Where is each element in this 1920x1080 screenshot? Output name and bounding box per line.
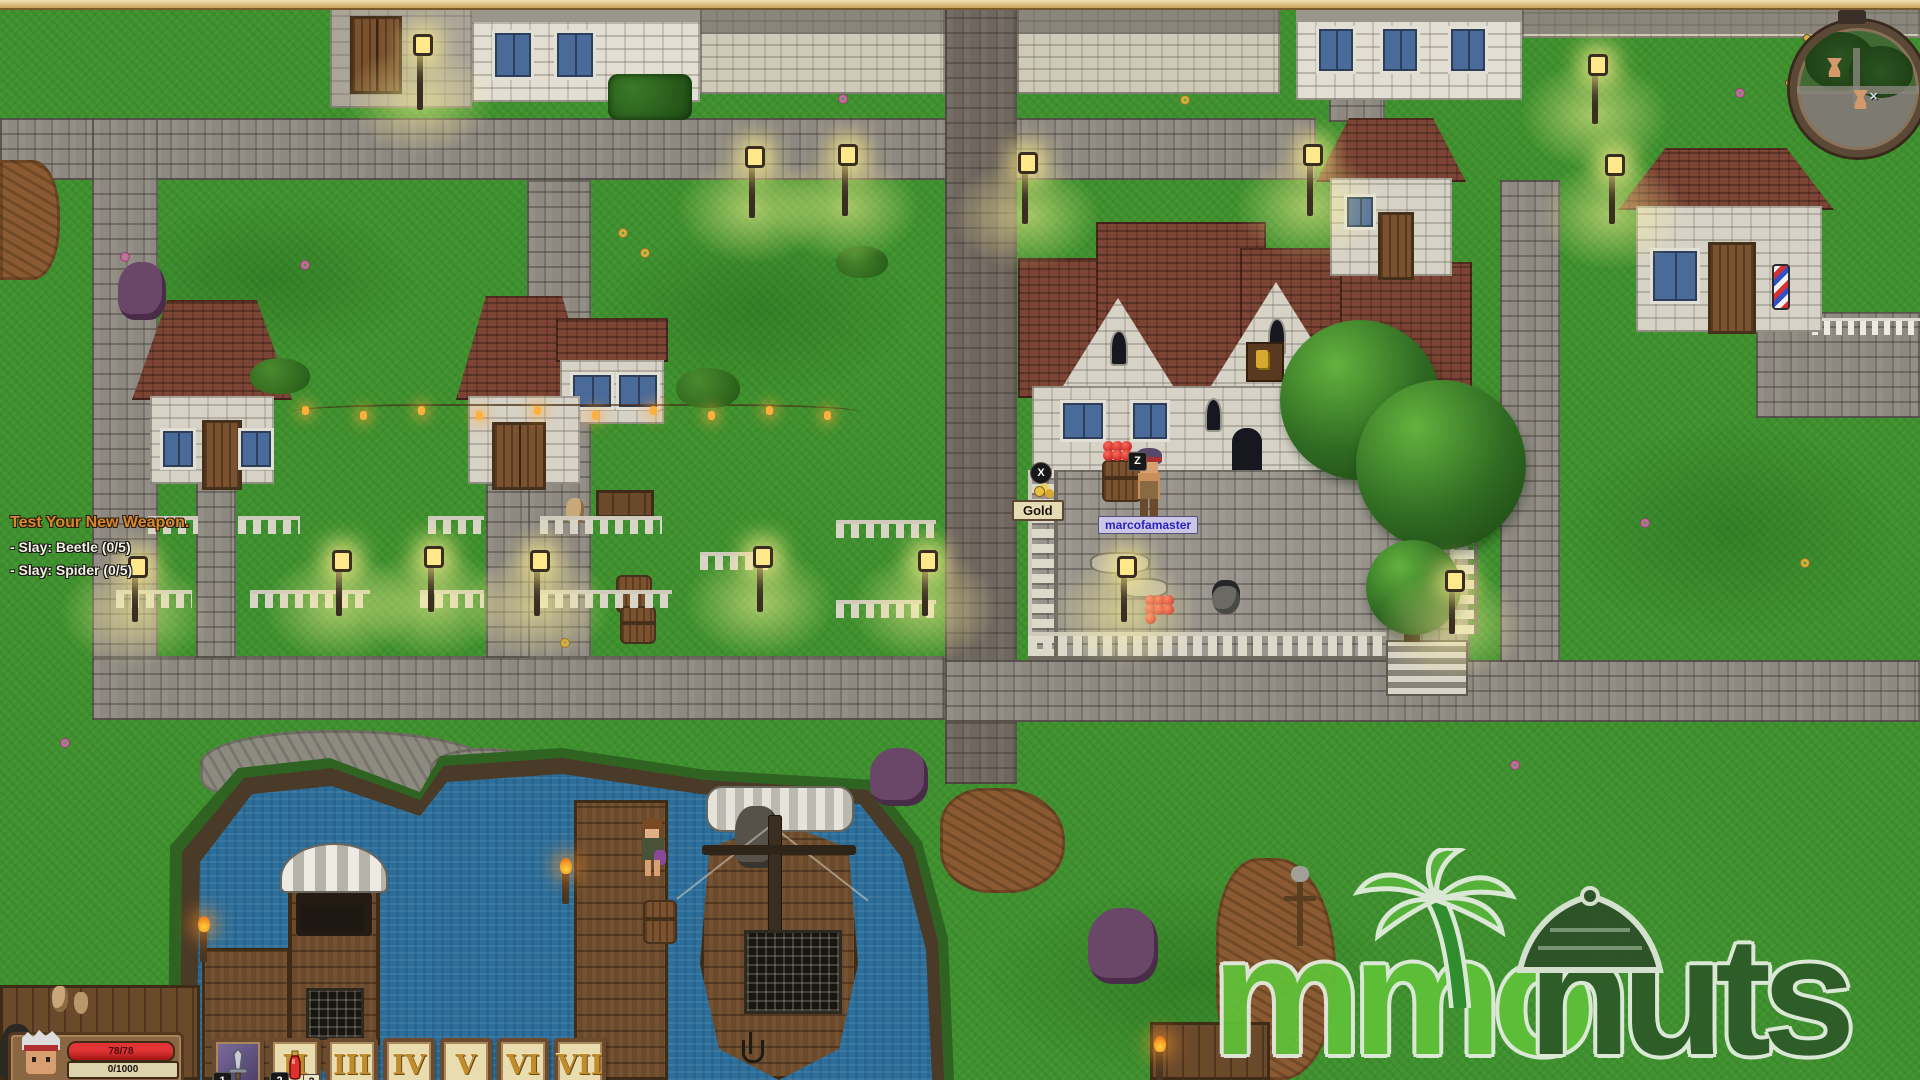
hotbar-numeral: III <box>333 1050 371 1080</box>
barber-pole-icon <box>1772 264 1790 310</box>
window <box>1316 26 1356 74</box>
xp-bar: 0/1000 <box>67 1061 179 1079</box>
hotbar-slot-4[interactable]: IV <box>383 1038 435 1080</box>
npc-dock[interactable] <box>640 818 666 880</box>
slit-window <box>1110 330 1128 366</box>
top-building-roofline <box>472 8 700 22</box>
path-house-b <box>486 484 530 658</box>
stone-fence <box>420 590 484 608</box>
bush <box>250 358 310 394</box>
top-building-door[interactable] <box>350 16 402 94</box>
quest-objective: - Slay: Spider (0/5) <box>10 562 250 578</box>
town-wall-right <box>1017 8 1280 94</box>
player-leg <box>1150 499 1158 517</box>
player-marker-icon: ✕ <box>1869 90 1878 103</box>
terrace-stairs <box>1386 640 1468 696</box>
slit-window <box>1205 398 1222 432</box>
apple-pile[interactable] <box>1146 596 1176 623</box>
hotbar-slot-7[interactable]: VII <box>554 1038 606 1080</box>
portrait-face <box>26 1048 56 1074</box>
hotbar-numeral: VII <box>557 1050 603 1080</box>
dirt-patch <box>940 788 1065 893</box>
window <box>1650 248 1700 304</box>
hp-bar: 78/78 <box>67 1041 175 1062</box>
player-portrait[interactable] <box>20 1030 62 1078</box>
tavern-sign-mug-icon <box>1256 350 1268 368</box>
hotbar-slot-2[interactable]: II 2 2 <box>269 1038 321 1080</box>
stone-fence <box>250 590 370 608</box>
stone-fence <box>836 520 936 538</box>
purple-stump <box>118 262 166 320</box>
window <box>160 428 196 470</box>
interact-key-badge[interactable]: Z <box>1128 452 1147 471</box>
stone-fence <box>428 516 484 534</box>
minimap-knob <box>1838 10 1866 24</box>
amphora <box>52 986 68 1012</box>
house-b-door[interactable] <box>492 422 546 490</box>
road-left-vertical <box>92 118 158 720</box>
window <box>1448 26 1488 74</box>
house-b-wing-roof <box>556 318 668 362</box>
ship-large-grate <box>744 930 842 1014</box>
house-topright-door[interactable] <box>1378 212 1414 280</box>
tree-small <box>1366 540 1461 635</box>
hotbar-slot-1[interactable]: 1 <box>212 1038 264 1080</box>
coin-icon <box>1034 486 1045 497</box>
tree <box>1356 380 1526 550</box>
anchor-icon <box>742 1040 764 1063</box>
gold-label[interactable]: Gold <box>1012 500 1064 521</box>
mmohuts-watermark: mmo huts <box>1200 850 1920 1080</box>
purple-stump <box>870 748 928 806</box>
stone-fence <box>540 590 672 608</box>
player-name-tag: marcofamaster <box>1098 516 1198 534</box>
hotbar-slot-6[interactable]: VI <box>497 1038 549 1080</box>
hotbar-key-2: 2 <box>270 1072 289 1080</box>
weapon-table <box>596 490 654 518</box>
dock-barrel[interactable] <box>643 900 677 944</box>
quest-tracker: Test Your New Weapon. - Slay: Beetle (0/… <box>10 514 250 578</box>
portrait-eye <box>32 1057 36 1062</box>
hut-icon <box>1510 886 1670 986</box>
string-lights-wire <box>292 404 860 420</box>
purple-stump <box>1088 908 1158 984</box>
npc-face <box>645 829 659 838</box>
npc-leg <box>645 860 651 876</box>
hotbar-slot-3[interactable]: III <box>326 1038 378 1080</box>
stone-fence <box>116 590 192 608</box>
road-bottom <box>92 656 945 720</box>
dirt-patch <box>0 160 60 280</box>
road-top <box>0 118 1316 180</box>
window <box>554 30 596 80</box>
hotbar-count: 2 <box>303 1074 320 1080</box>
stone-fence <box>540 516 662 534</box>
portrait-bandana <box>24 1045 58 1051</box>
amphora <box>74 992 88 1014</box>
npc-leg <box>654 860 660 876</box>
minimap[interactable]: ✕ <box>1790 21 1920 157</box>
top-gold-strip <box>0 0 1920 10</box>
shuttered-window <box>1130 400 1170 442</box>
bush <box>836 246 888 278</box>
barrel[interactable] <box>620 606 656 644</box>
player-leg <box>1140 499 1148 517</box>
game-scene: X Z Gold marcofamaster Test Your New Wea… <box>0 0 1920 1080</box>
hedge <box>608 74 692 120</box>
hotbar-numeral: VI <box>506 1050 540 1080</box>
stone-slab <box>1090 552 1150 574</box>
hotbar-numeral: V <box>456 1050 477 1080</box>
clay-pot[interactable] <box>1212 580 1240 614</box>
quest-title: Test Your New Weapon. <box>10 514 250 532</box>
ship-small-rigging-frame <box>300 905 364 931</box>
hotbar-key-1: 1 <box>213 1072 232 1080</box>
ship-large-crossbeam <box>702 845 856 855</box>
town-wall-left <box>700 8 945 94</box>
top-building-roofline <box>1296 8 1522 22</box>
hotbar-slot-5[interactable]: V <box>440 1038 492 1080</box>
portrait-eye <box>46 1057 50 1062</box>
shuttered-window <box>1060 400 1106 442</box>
quest-objective: - Slay: Beetle (0/5) <box>10 539 250 555</box>
player-apron <box>1140 481 1158 499</box>
window <box>492 30 534 80</box>
hotbar-numeral: IV <box>392 1050 426 1080</box>
balustrade <box>1028 470 1058 658</box>
pickup-key-badge[interactable]: X <box>1030 462 1052 484</box>
bush <box>676 368 740 408</box>
window <box>1344 194 1376 230</box>
picket-fence <box>1812 318 1920 335</box>
grass-shade <box>1560 420 1900 640</box>
window <box>238 428 274 470</box>
house-a-door[interactable] <box>202 420 242 490</box>
stone-fence <box>836 600 936 618</box>
ship-small-grate <box>306 988 364 1040</box>
barber-door[interactable] <box>1708 242 1756 334</box>
stone-fence <box>700 552 770 570</box>
balustrade <box>1028 632 1386 660</box>
window <box>1380 26 1420 74</box>
anchor-icon-stem <box>749 1032 752 1054</box>
